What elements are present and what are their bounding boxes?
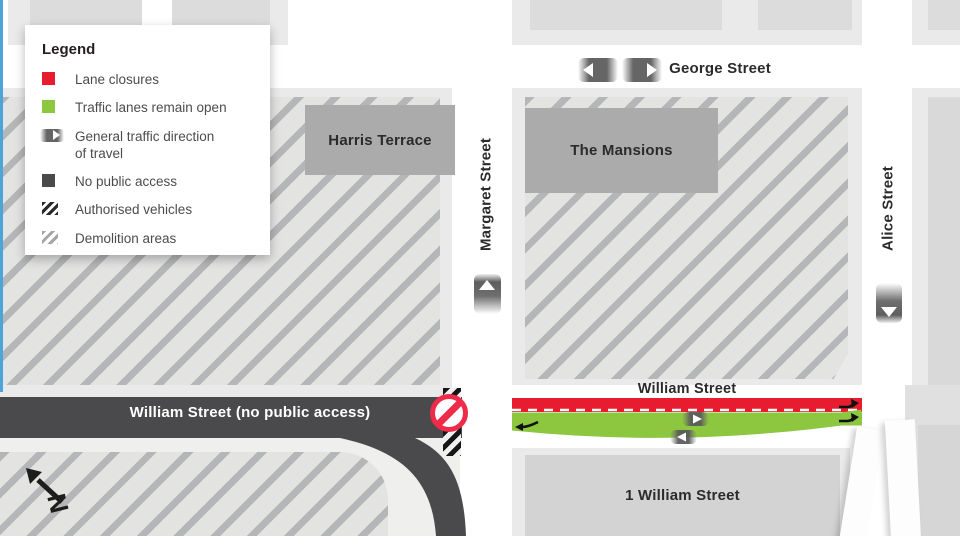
- harris-terrace-label: Harris Terrace: [328, 132, 431, 149]
- traffic-direction-down-icon: [876, 283, 902, 323]
- demolition-areas-swatch-icon: [42, 230, 64, 244]
- southeast-building: [918, 425, 960, 536]
- building-the-mansions: The Mansions: [525, 108, 718, 193]
- margaret-street-label: Margaret Street: [478, 115, 495, 275]
- lane-closures-swatch-icon: [42, 71, 64, 85]
- ramp-road-2: [885, 419, 921, 536]
- william-street-lanes: [512, 379, 862, 452]
- legend-item-authorised-vehicles: Authorised vehicles: [42, 201, 270, 218]
- legend-label: General traffic direction of travel: [75, 128, 225, 163]
- legend-label: No public access: [75, 173, 177, 190]
- traffic-direction-swatch-icon: [42, 128, 64, 142]
- legend-item-lanes-open: Traffic lanes remain open: [42, 99, 270, 116]
- building-harris-terrace: Harris Terrace: [305, 105, 455, 175]
- lane-direction-east-icon: [682, 412, 709, 426]
- authorised-vehicles-swatch-icon: [42, 201, 64, 215]
- traffic-direction-right-icon: [622, 58, 662, 82]
- traffic-map: Harris Terrace The Mansions 1 William St…: [0, 0, 960, 536]
- top-right-building: [928, 0, 960, 30]
- traffic-direction-left-icon: [578, 58, 618, 82]
- legend-title: Legend: [42, 41, 270, 58]
- map-edge-strip: [0, 0, 3, 392]
- alice-street-label: Alice Street: [880, 129, 897, 289]
- one-william-label: 1 William Street: [625, 487, 740, 504]
- legend-label: Authorised vehicles: [75, 201, 192, 218]
- top-middle-building-2: [758, 0, 852, 30]
- lane-direction-west-icon: [670, 430, 697, 444]
- traffic-direction-up-icon: [474, 274, 501, 314]
- legend-label: Lane closures: [75, 71, 159, 88]
- east-building: [928, 97, 960, 385]
- george-street-label: George Street: [640, 60, 800, 77]
- legend-item-traffic-direction: General traffic direction of travel: [42, 128, 270, 163]
- legend-item-demolition-areas: Demolition areas: [42, 230, 270, 247]
- legend-label: Demolition areas: [75, 230, 176, 247]
- top-middle-building: [530, 0, 722, 30]
- mansions-label: The Mansions: [570, 142, 672, 159]
- legend-panel: Legend Lane closures Traffic lanes remai…: [25, 25, 270, 255]
- legend-item-no-public-access: No public access: [42, 173, 270, 190]
- no-public-access-swatch-icon: [42, 173, 64, 187]
- lanes-open-swatch-icon: [42, 99, 64, 113]
- building-one-william: 1 William Street: [525, 455, 840, 536]
- legend-label: Traffic lanes remain open: [75, 99, 227, 116]
- legend-item-lane-closures: Lane closures: [42, 71, 270, 88]
- no-entry-icon: [430, 394, 468, 432]
- william-street-closed-label: William Street (no public access): [60, 404, 440, 421]
